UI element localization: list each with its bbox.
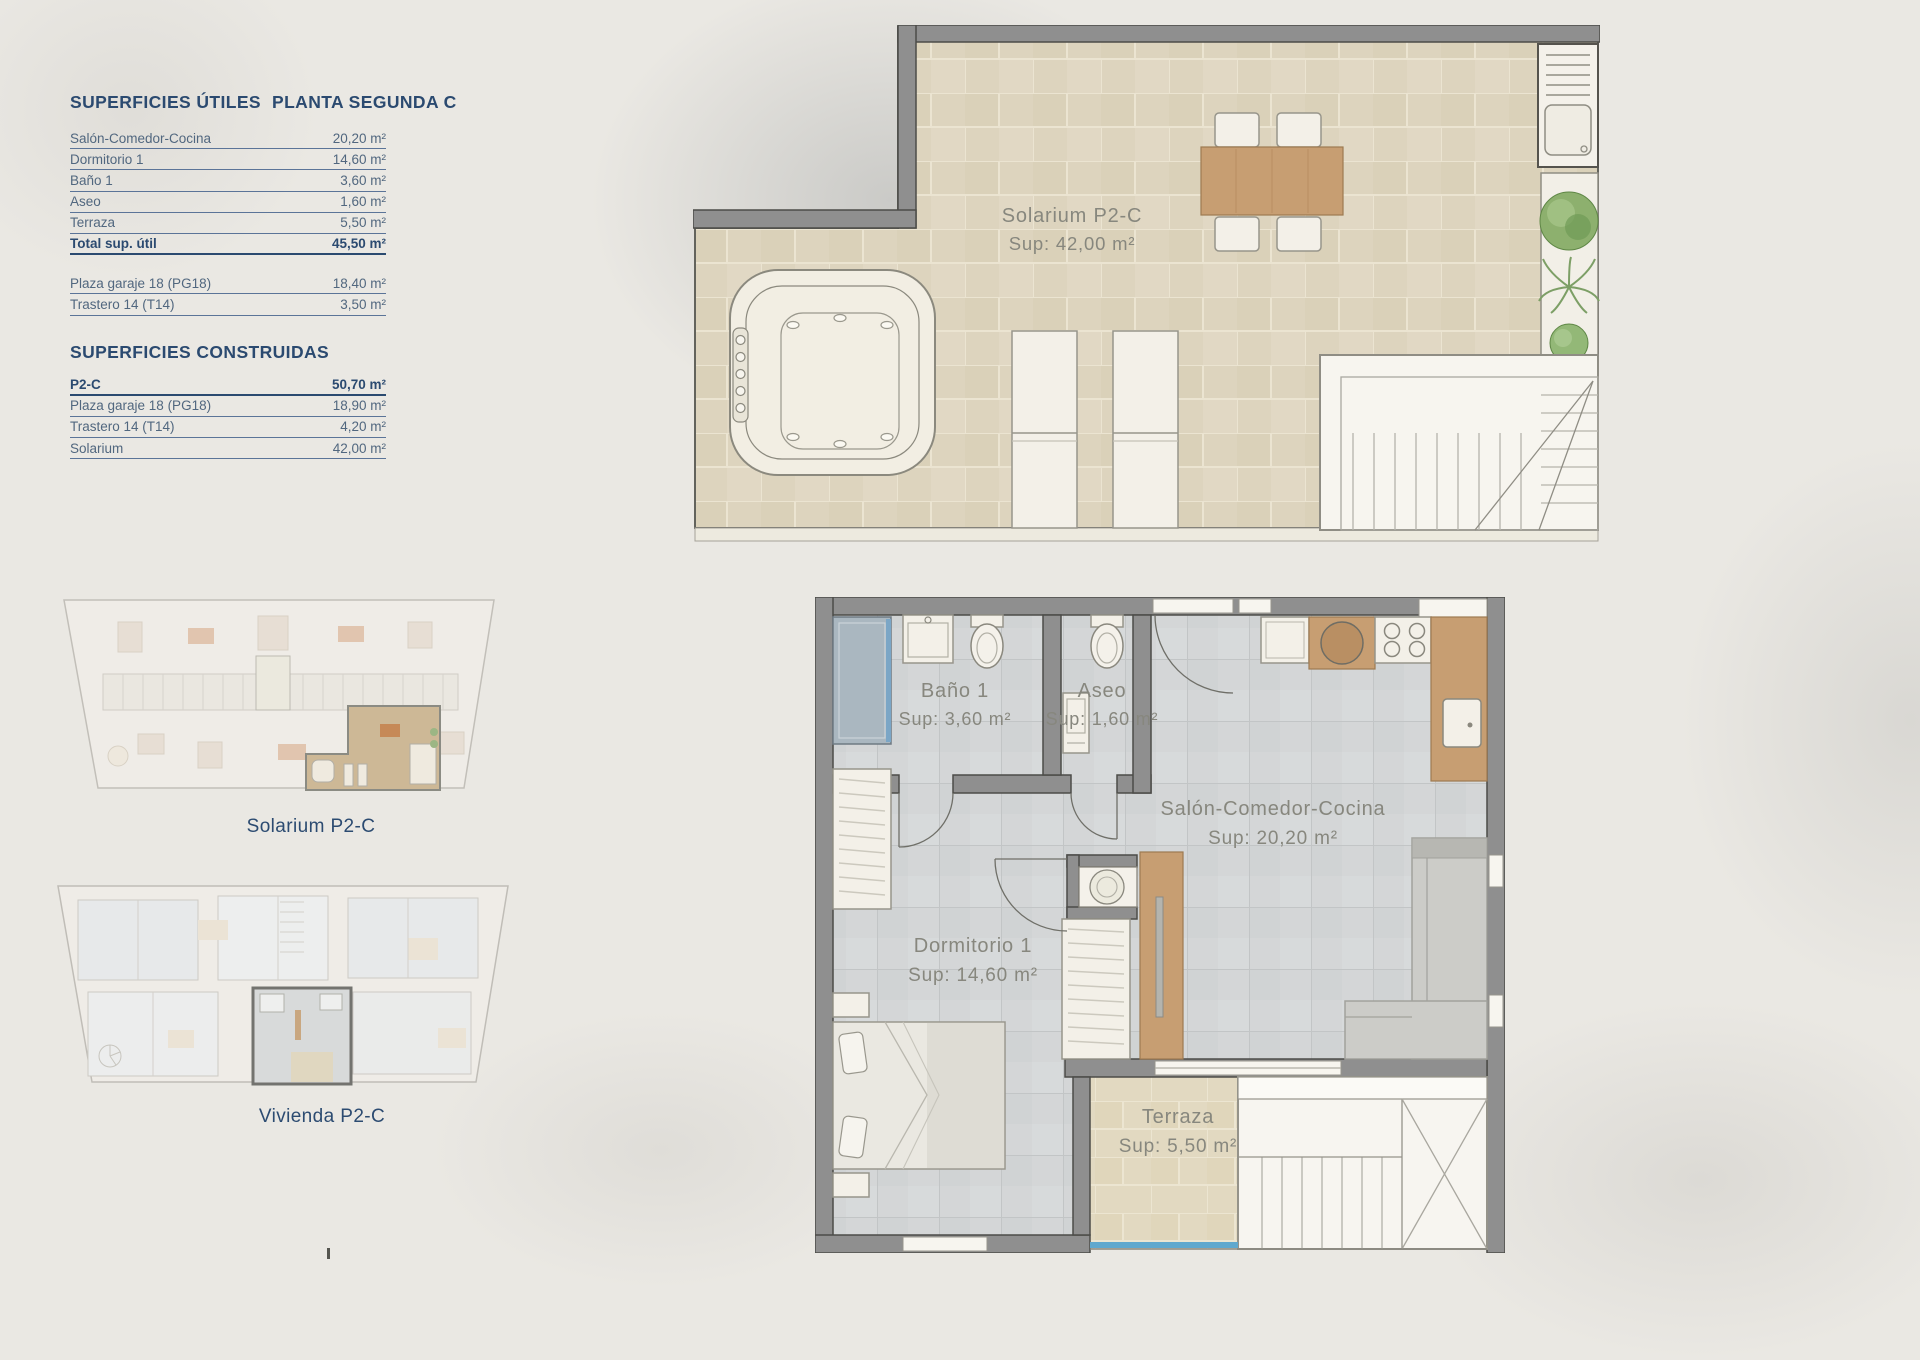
bano-label: Baño 1: [921, 680, 989, 702]
salon-label: Salón-Comedor-Cocina: [1161, 798, 1386, 820]
table-row: Dormitorio 1 14,60 m²: [70, 149, 386, 170]
sun-lounger-icon: [1012, 331, 1077, 528]
shower-icon: [833, 617, 891, 744]
bathroom-sink-icon: [903, 615, 953, 663]
dormitorio-sup-label: Sup: 14,60 m²: [908, 965, 1038, 986]
table-row: Solarium 42,00 m²: [70, 438, 386, 459]
bed-icon: [833, 993, 1005, 1197]
surface-tables: SUPERFICIES ÚTILES PLANTA SEGUNDA C Saló…: [70, 92, 386, 459]
row-value: 5,50 m²: [340, 215, 386, 230]
table-row: Trastero 14 (T14) 3,50 m²: [70, 294, 386, 315]
row-value: 3,60 m²: [340, 173, 386, 188]
row-label: Baño 1: [70, 173, 113, 188]
table-row: Aseo 1,60 m²: [70, 192, 386, 213]
table-row-total: Total sup. útil 45,50 m²: [70, 234, 386, 255]
wood-wardrobe-icon: [1140, 852, 1183, 1059]
terraza-label: Terraza: [1142, 1106, 1214, 1128]
apartment-floor-plan: Baño 1 Sup: 3,60 m² Aseo Sup: 1,60 m² Sa…: [815, 597, 1505, 1253]
row-label: Total sup. útil: [70, 236, 157, 251]
jacuzzi-icon: [730, 270, 935, 475]
hob-icon: [1375, 617, 1431, 663]
thumbnail-label-solarium: Solarium P2-C: [201, 816, 421, 838]
row-label: Dormitorio 1: [70, 152, 144, 167]
row-label: Salón-Comedor-Cocina: [70, 131, 211, 146]
solarium-floor-plan: Solarium P2-C Sup: 42,00 m²: [693, 25, 1600, 543]
planter-icon: [1539, 173, 1599, 369]
row-value: 20,20 m²: [333, 131, 386, 146]
row-value: 42,00 m²: [333, 441, 386, 456]
page-edge-mark: [327, 1248, 330, 1259]
outdoor-kitchenette-icon: [1538, 44, 1598, 167]
row-label: Solarium: [70, 441, 123, 456]
watercolor-blotch: [1680, 440, 1920, 1000]
row-label: Plaza garaje 18 (PG18): [70, 398, 211, 413]
toilet-icon: [971, 615, 1003, 668]
aseo-label: Aseo: [1078, 680, 1127, 702]
bano-sup-label: Sup: 3,60 m²: [899, 709, 1012, 729]
dormitorio-label: Dormitorio 1: [914, 935, 1033, 957]
bush-icon: [1540, 192, 1598, 250]
row-label: Aseo: [70, 194, 101, 209]
kitchen-sink-icon: [1443, 699, 1481, 747]
table-header: SUPERFICIES ÚTILES PLANTA SEGUNDA C: [70, 92, 386, 118]
table-row: Baño 1 3,60 m²: [70, 170, 386, 191]
row-value: 3,50 m²: [340, 297, 386, 312]
thumbnail-label-vivienda: Vivienda P2-C: [212, 1106, 432, 1128]
table-row: Trastero 14 (T14) 4,20 m²: [70, 417, 386, 438]
row-value: 50,70 m²: [332, 377, 386, 392]
row-value: 4,20 m²: [340, 419, 386, 434]
row-label: Trastero 14 (T14): [70, 419, 175, 434]
building-vivienda-thumbnail: [48, 880, 518, 1092]
table-row: Terraza 5,50 m²: [70, 213, 386, 234]
row-label: Terraza: [70, 215, 115, 230]
row-value: 14,60 m²: [333, 152, 386, 167]
highlighted-unit: [253, 988, 351, 1084]
row-value: 1,60 m²: [340, 194, 386, 209]
sliding-door: [1155, 1061, 1341, 1075]
salon-sup-label: Sup: 20,20 m²: [1208, 828, 1338, 849]
washing-machine-icon: [1079, 867, 1137, 907]
row-label: Plaza garaje 18 (PG18): [70, 276, 211, 291]
stairs-icon: [1238, 1077, 1487, 1249]
wardrobe-icon: [833, 769, 891, 909]
table-row: P2-C 50,70 m²: [70, 375, 386, 396]
table-row: Plaza garaje 18 (PG18) 18,90 m²: [70, 396, 386, 417]
stairs-icon: [1320, 355, 1598, 530]
solarium-sup-label: Sup: 42,00 m²: [1009, 233, 1136, 254]
table-title-construidas: SUPERFICIES CONSTRUIDAS: [70, 342, 386, 363]
row-label: P2-C: [70, 377, 101, 392]
table-subtitle-planta: PLANTA SEGUNDA C: [272, 92, 457, 113]
terraza-sup-label: Sup: 5,50 m²: [1119, 1136, 1237, 1157]
row-value: 18,90 m²: [333, 398, 386, 413]
toilet-icon: [1091, 615, 1123, 668]
aseo-sup-label: Sup: 1,60 m²: [1046, 709, 1159, 729]
table-row: Salón-Comedor-Cocina 20,20 m²: [70, 128, 386, 149]
table-title-utiles: SUPERFICIES ÚTILES: [70, 92, 261, 112]
sun-lounger-icon: [1113, 331, 1178, 528]
building-solarium-thumbnail: [48, 594, 510, 816]
solarium-label: Solarium P2-C: [1002, 205, 1142, 227]
row-value: 45,50 m²: [332, 236, 386, 251]
table-row: Plaza garaje 18 (PG18) 18,40 m²: [70, 273, 386, 294]
row-label: Trastero 14 (T14): [70, 297, 175, 312]
row-value: 18,40 m²: [333, 276, 386, 291]
wardrobe-icon: [1062, 919, 1130, 1059]
